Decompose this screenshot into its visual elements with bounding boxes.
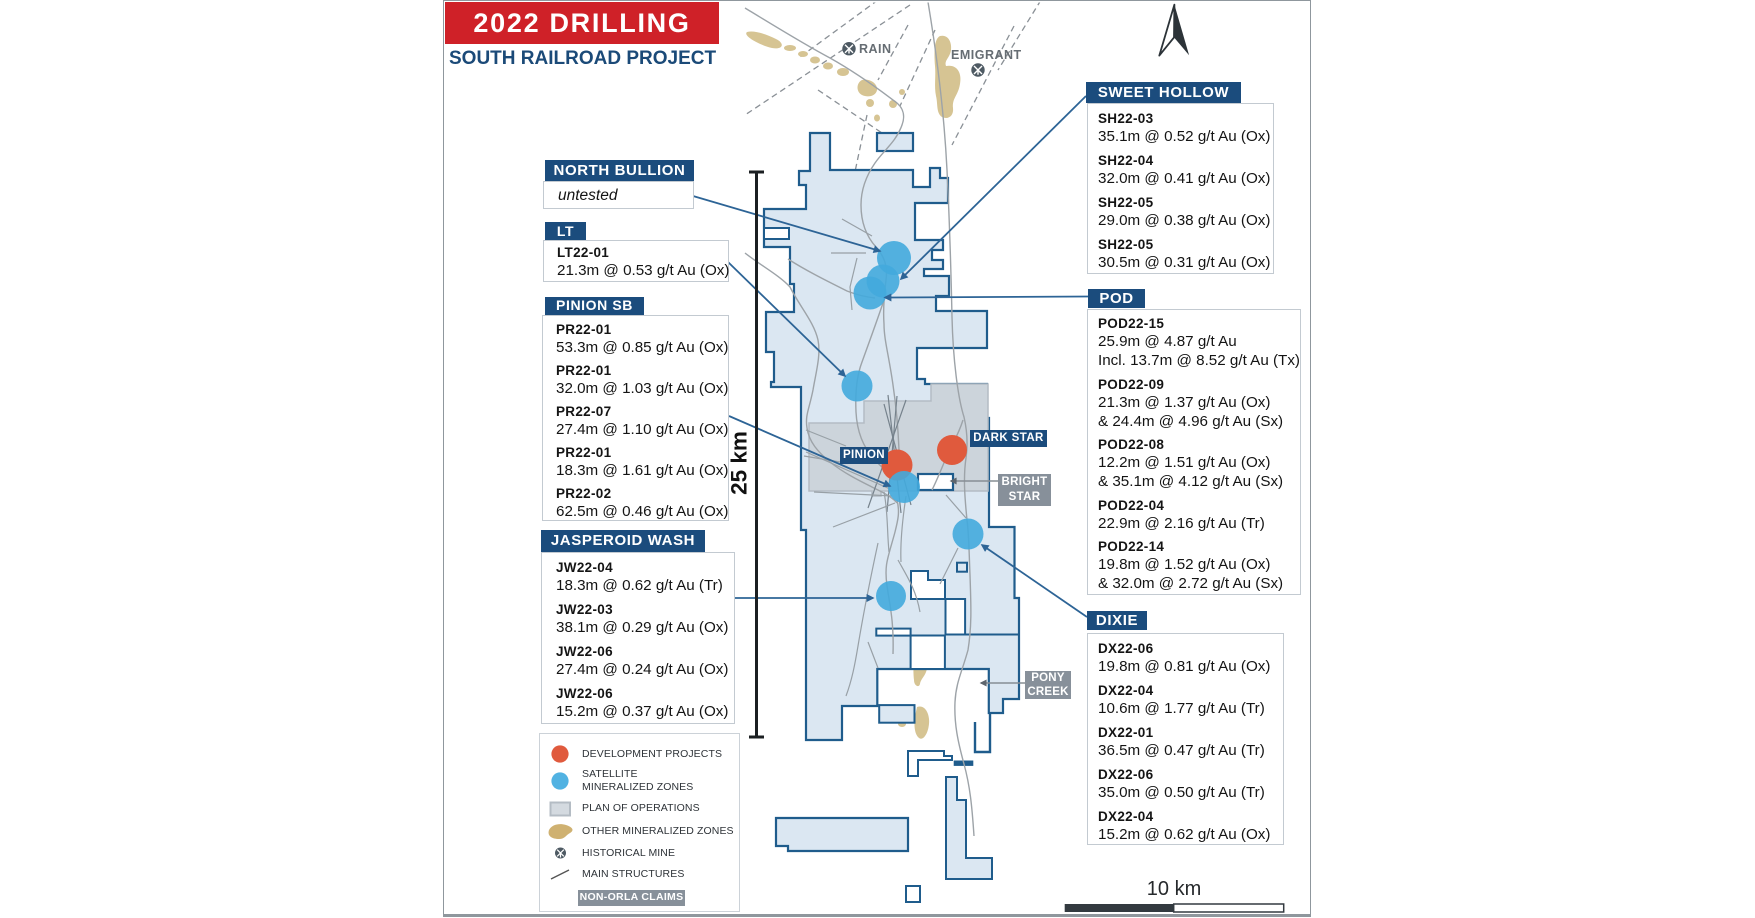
svg-text:25 km: 25 km — [727, 431, 752, 495]
